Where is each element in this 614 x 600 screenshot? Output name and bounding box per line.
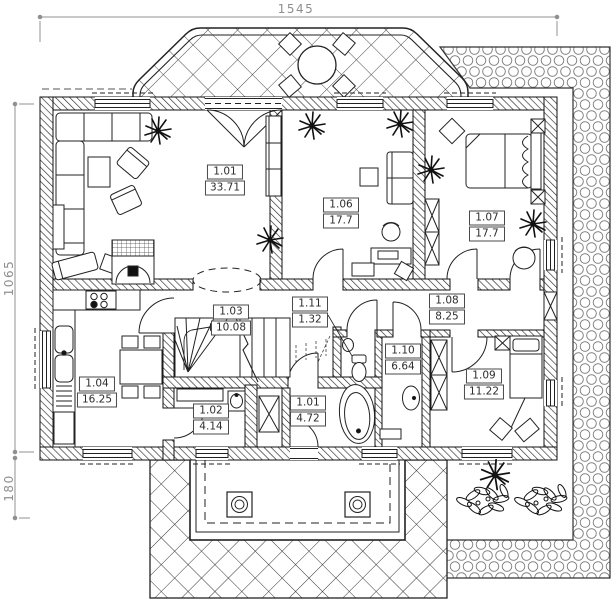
room-label-1-01: 1.01 33.71	[205, 165, 245, 196]
window	[35, 328, 53, 391]
front-terrace	[133, 28, 468, 102]
room-number: 1.01	[207, 165, 243, 180]
printer-shelf	[352, 263, 374, 276]
room-number: 1.03	[213, 305, 249, 320]
room-area: 4.14	[193, 420, 229, 435]
room-label-1-08: 1.08 8.25	[429, 294, 465, 325]
room-number: 1.01	[290, 396, 326, 411]
room-label-1-09: 1.09 11.22	[464, 369, 504, 400]
toilet-tank	[352, 355, 366, 363]
cabinet	[177, 389, 223, 401]
media-bench	[53, 205, 64, 249]
coffee-table	[88, 157, 110, 187]
terrace-table	[298, 46, 336, 84]
dining-table	[120, 350, 162, 384]
room-label-1-10: 1.10 6.64	[385, 344, 421, 375]
chair	[144, 386, 160, 398]
fireplace	[112, 240, 154, 284]
washbasin	[403, 386, 420, 410]
bath-bench	[380, 429, 401, 439]
room-number: 1.07	[469, 211, 505, 226]
room-number: 1.09	[466, 369, 502, 384]
room-number: 1.08	[429, 294, 465, 309]
room-area: 17.7	[469, 227, 505, 242]
room-label-1-03: 1.03 10.08	[211, 305, 251, 336]
window	[459, 447, 515, 464]
dimension-height: 1065	[2, 260, 16, 297]
window	[544, 237, 562, 273]
window	[544, 377, 562, 409]
chair	[122, 386, 138, 398]
side-table	[360, 168, 378, 186]
bookshelf	[266, 116, 281, 196]
room-area: 4.72	[290, 412, 326, 427]
room-number: 1.04	[79, 377, 115, 392]
room-area: 6.64	[385, 360, 421, 375]
room-label-1-07: 1.07 17.7	[469, 211, 505, 242]
room-area: 8.25	[429, 310, 465, 325]
room-area: 16.25	[77, 393, 117, 408]
room-number: 1.02	[193, 404, 229, 419]
room-label-1-04: 1.04 16.25	[77, 377, 117, 408]
room-area: 10.08	[211, 321, 251, 336]
room-number: 1.11	[292, 297, 328, 312]
room-label-1-01b: 1.01 4.72	[290, 396, 326, 427]
room-number: 1.06	[323, 198, 359, 213]
desk-chair	[382, 223, 400, 241]
chair	[144, 336, 160, 348]
toilet	[352, 363, 366, 382]
room-area: 17.7	[323, 214, 359, 229]
window	[80, 447, 135, 464]
sofa	[56, 113, 152, 141]
dimension-width: 1545	[278, 2, 315, 16]
dimension-porch-depth: 180	[2, 474, 16, 501]
chair	[122, 336, 138, 348]
garden-bushes	[455, 483, 567, 516]
rear-porch	[150, 458, 447, 598]
sink-bowl	[55, 326, 73, 353]
cabinet	[54, 412, 74, 444]
window-fixed	[544, 292, 557, 320]
porch-column	[227, 492, 252, 517]
room-area: 33.71	[205, 181, 245, 196]
room-number: 1.10	[385, 344, 421, 359]
room-label-1-02: 1.02 4.14	[193, 404, 229, 435]
room-area: 11.22	[464, 385, 504, 400]
floor-plan: 1.01 33.71 1.06 17.7 1.07 17.7 1.03 10.0…	[0, 0, 614, 600]
porch-column	[345, 492, 370, 517]
sink-bowl	[55, 355, 73, 382]
room-area: 1.32	[292, 313, 328, 328]
room-label-1-11: 1.11 1.32	[292, 297, 328, 328]
room-label-1-06: 1.06 17.7	[323, 198, 359, 229]
